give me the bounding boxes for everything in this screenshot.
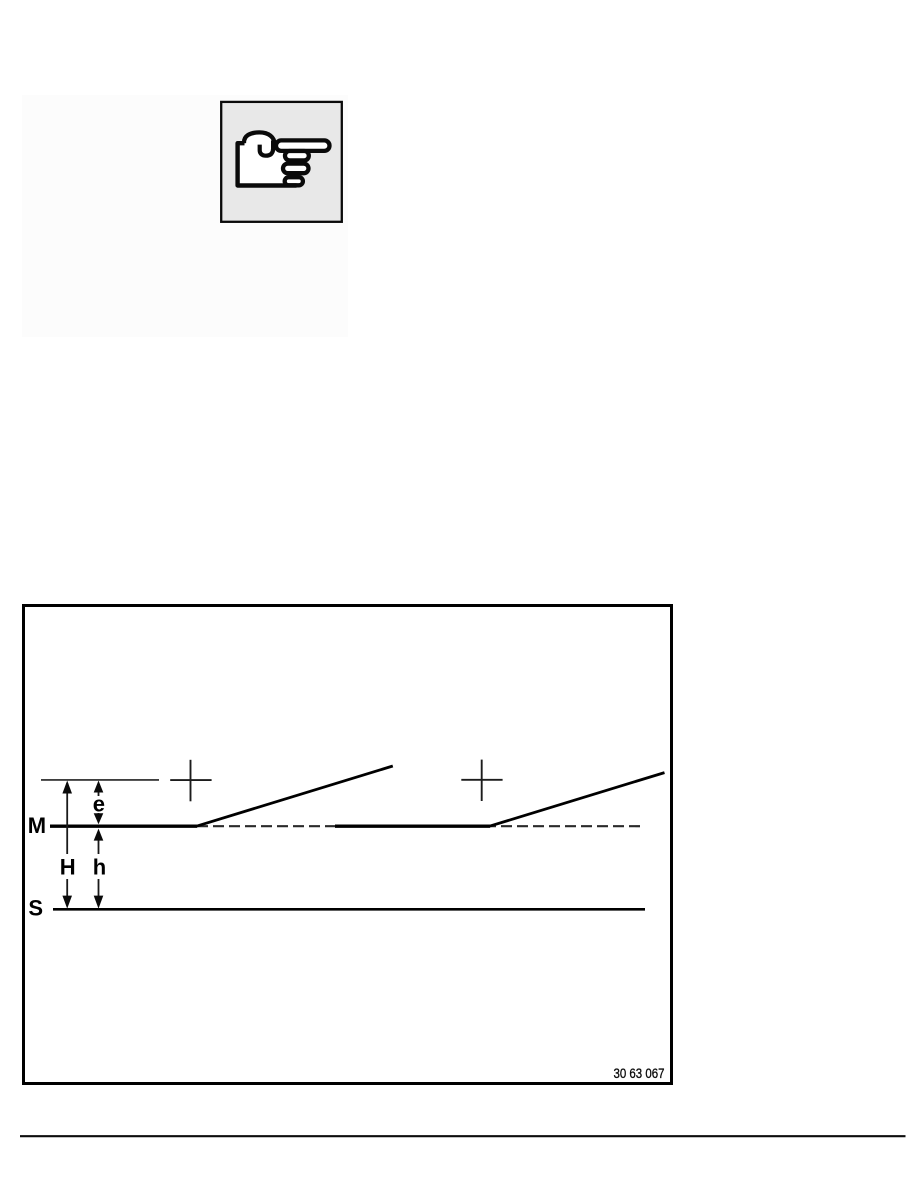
svg-text:M: M xyxy=(28,813,46,838)
svg-text:h: h xyxy=(93,855,106,880)
svg-text:S: S xyxy=(28,896,43,921)
svg-text:H: H xyxy=(60,855,76,880)
svg-text:30 63 067: 30 63 067 xyxy=(614,1066,665,1081)
